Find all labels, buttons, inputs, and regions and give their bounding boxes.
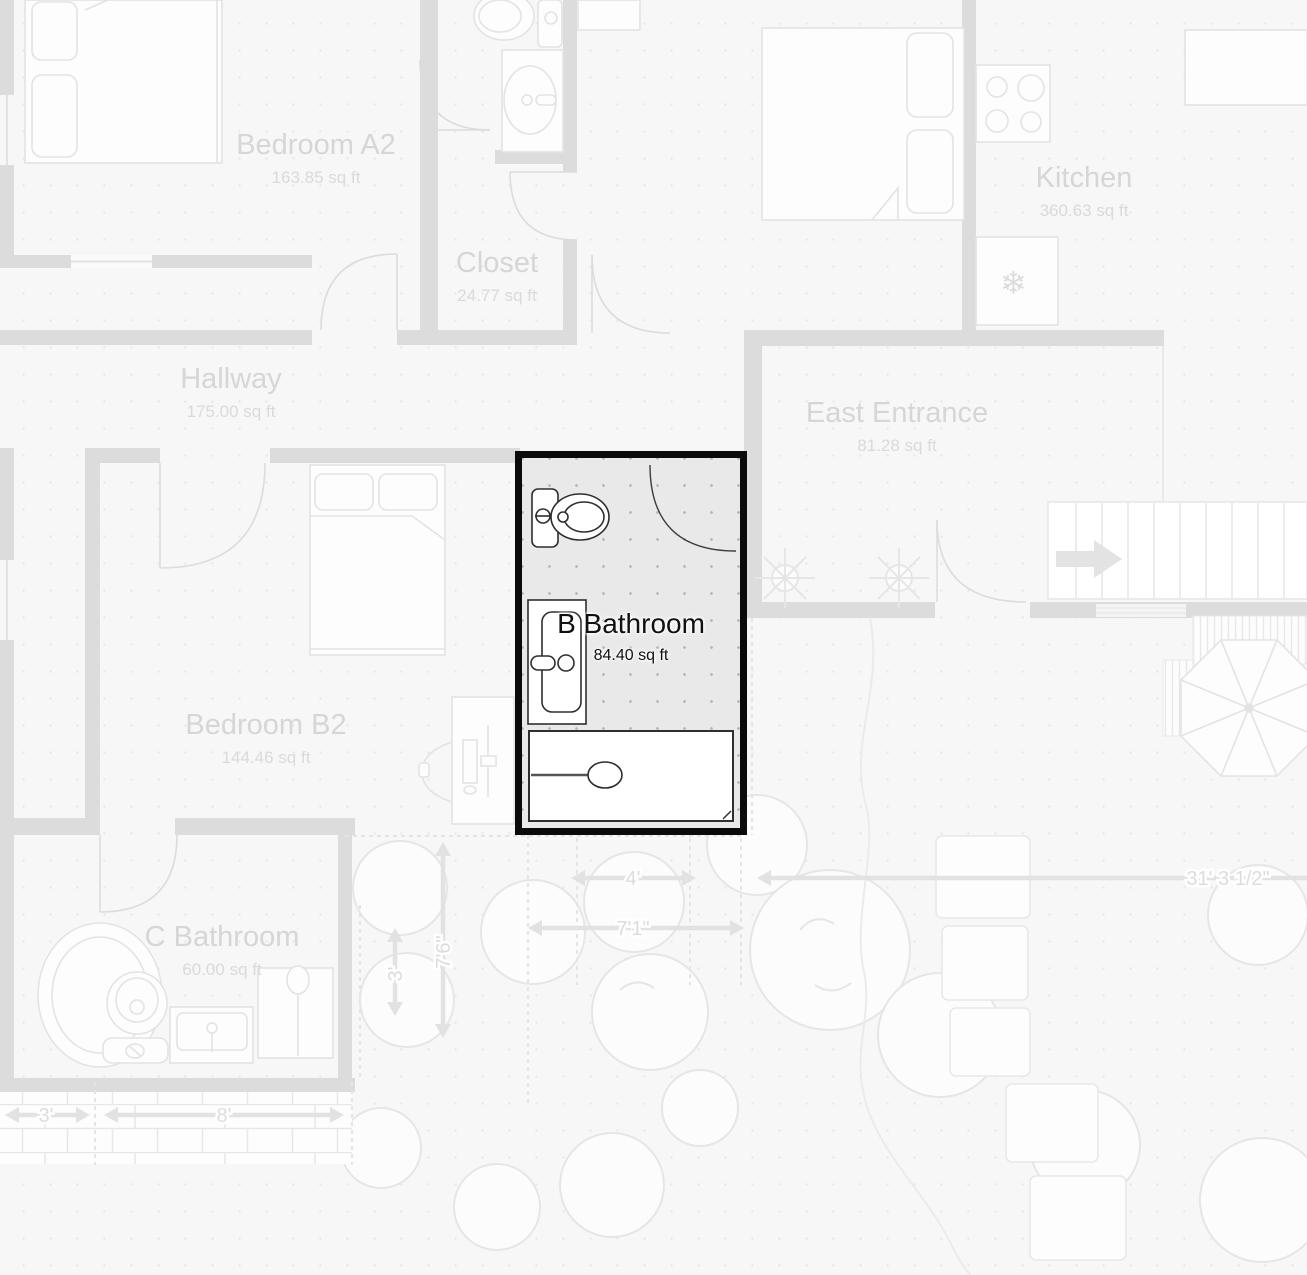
bed-a2 [25, 0, 222, 163]
room-name: Closet [456, 248, 538, 280]
selected-room-name: B Bathroom [557, 608, 705, 640]
patio-umbrella-icon [1181, 640, 1307, 776]
toilet-icon [532, 489, 609, 547]
trees-layer [341, 795, 1307, 1262]
dimension-label: 7'6" [433, 935, 455, 968]
shrub-icon [755, 548, 815, 608]
brick-patio [0, 1092, 352, 1164]
shrub-icon [869, 548, 929, 608]
staircase [1048, 502, 1307, 599]
toilet-a-icon [474, 0, 562, 47]
room-name: Bedroom A2 [236, 130, 396, 162]
room-area: 163.85 sq ft [236, 168, 396, 188]
dimension-label: 8' [217, 1105, 232, 1127]
room-label-hallway: Hallway 175.00 sq ft [180, 364, 282, 422]
room-name: Bedroom B2 [185, 710, 346, 742]
door-swing-icon [650, 465, 736, 551]
desk [419, 697, 514, 824]
room-label-kitchen: Kitchen 360.63 sq ft [1036, 163, 1133, 221]
room-area: 60.00 sq ft [145, 960, 300, 980]
dimension-label: 31' 3 1/2" [1186, 868, 1269, 890]
room-label-closet: Closet 24.77 sq ft [456, 248, 538, 306]
room-label-c-bathroom: C Bathroom 60.00 sq ft [145, 922, 300, 980]
room-name: C Bathroom [145, 922, 300, 954]
room-area: 81.28 sq ft [806, 436, 988, 456]
room-label-bedroom-b2: Bedroom B2 144.46 sq ft [185, 710, 346, 768]
room-area: 360.63 sq ft [1036, 201, 1133, 221]
kitchen-counter [1185, 30, 1307, 105]
room-label-bedroom-a2: Bedroom A2 163.85 sq ft [236, 130, 396, 188]
floorplan-canvas: ❄ [0, 0, 1307, 1275]
stove-icon [976, 65, 1050, 142]
room-area: 175.00 sq ft [180, 402, 282, 422]
dimension-label: 7'1" [616, 918, 649, 940]
room-name: Kitchen [1036, 163, 1133, 195]
room-area: 144.46 sq ft [185, 748, 346, 768]
fridge-snowflake-icon: ❄ [1000, 265, 1027, 301]
dimension-label: 3' [39, 1105, 54, 1127]
room-name: East Entrance [806, 398, 988, 430]
room-area: 24.77 sq ft [456, 286, 538, 306]
stepping-stones [936, 836, 1126, 1260]
room-label-east-entrance: East Entrance 81.28 sq ft [806, 398, 988, 456]
room-name: Hallway [180, 364, 282, 396]
dimension-label: 4' [626, 868, 641, 890]
bathtub-icon [529, 731, 733, 821]
toilet-c-icon [103, 972, 168, 1063]
selected-room-label: B Bathroom 84.40 sq ft [557, 608, 705, 665]
selected-room-area: 84.40 sq ft [557, 647, 705, 665]
sink-c-icon [170, 1007, 253, 1063]
bed-a1 [762, 28, 964, 220]
dimension-label: 3' [385, 967, 407, 982]
bed-b2 [310, 465, 445, 655]
selected-room-b-bathroom[interactable]: B Bathroom 84.40 sq ft [515, 451, 747, 835]
